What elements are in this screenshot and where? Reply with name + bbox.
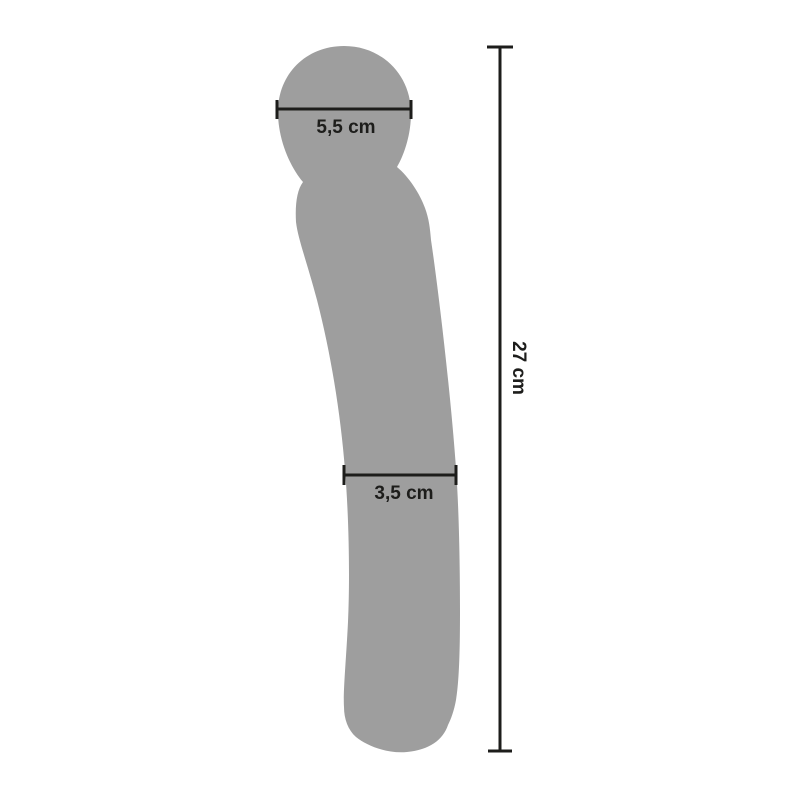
product-silhouette <box>278 46 460 752</box>
shaft-width-label: 3,5 cm <box>374 483 433 504</box>
head-width-label: 5,5 cm <box>316 117 375 138</box>
total-length-measurement <box>487 47 513 751</box>
dimension-diagram: 5,5 cm 3,5 cm 27 cm <box>0 0 800 800</box>
total-length-label: 27 cm <box>508 341 529 395</box>
diagram-svg: 5,5 cm 3,5 cm 27 cm <box>0 0 800 800</box>
